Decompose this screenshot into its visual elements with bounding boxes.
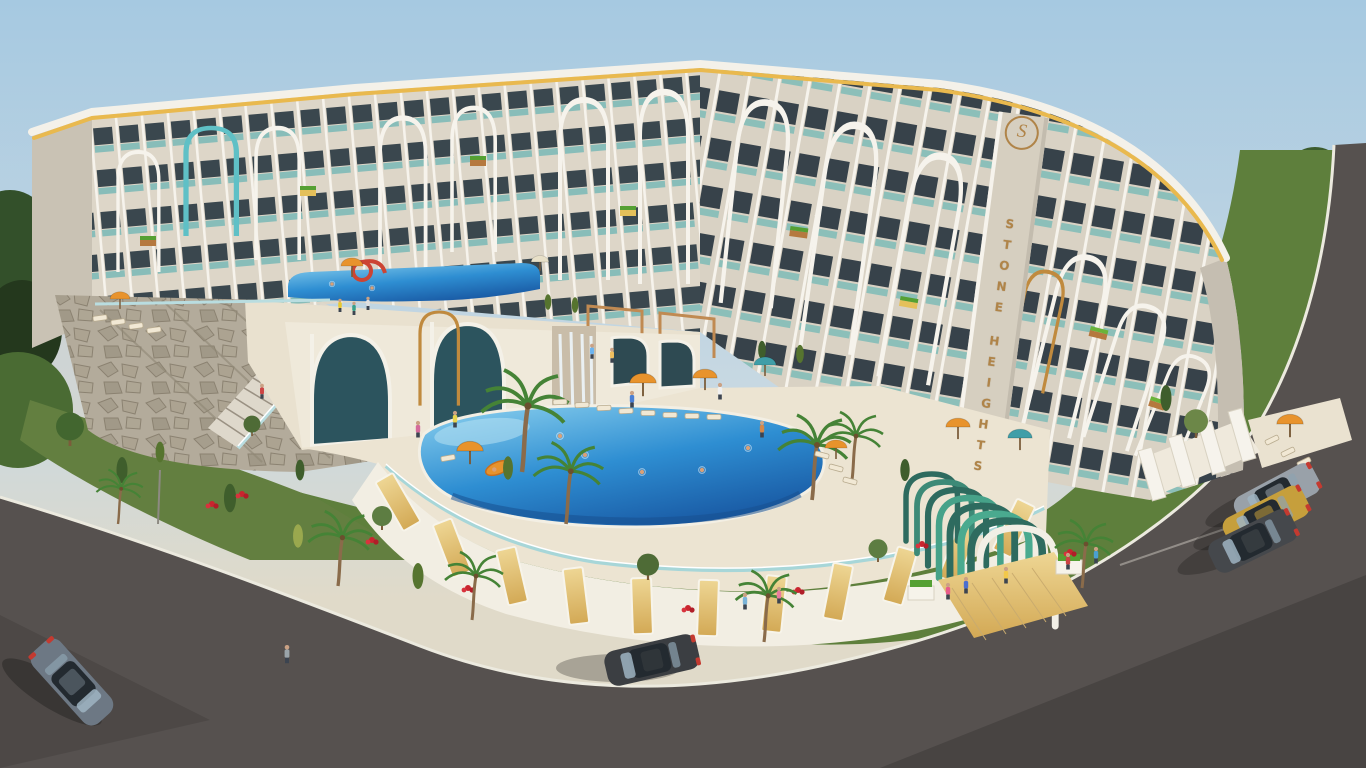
brand-logo-icon: S [1003,114,1041,152]
sign-spacer [988,147,1042,220]
resort-render [0,0,1366,768]
entrance-planter-left [908,586,934,600]
render-stage: S STONE HEIGHTS [0,0,1366,768]
sign-word-stone: STONE [990,216,1018,322]
sign-word-heights: HEIGHTS [969,333,1002,481]
